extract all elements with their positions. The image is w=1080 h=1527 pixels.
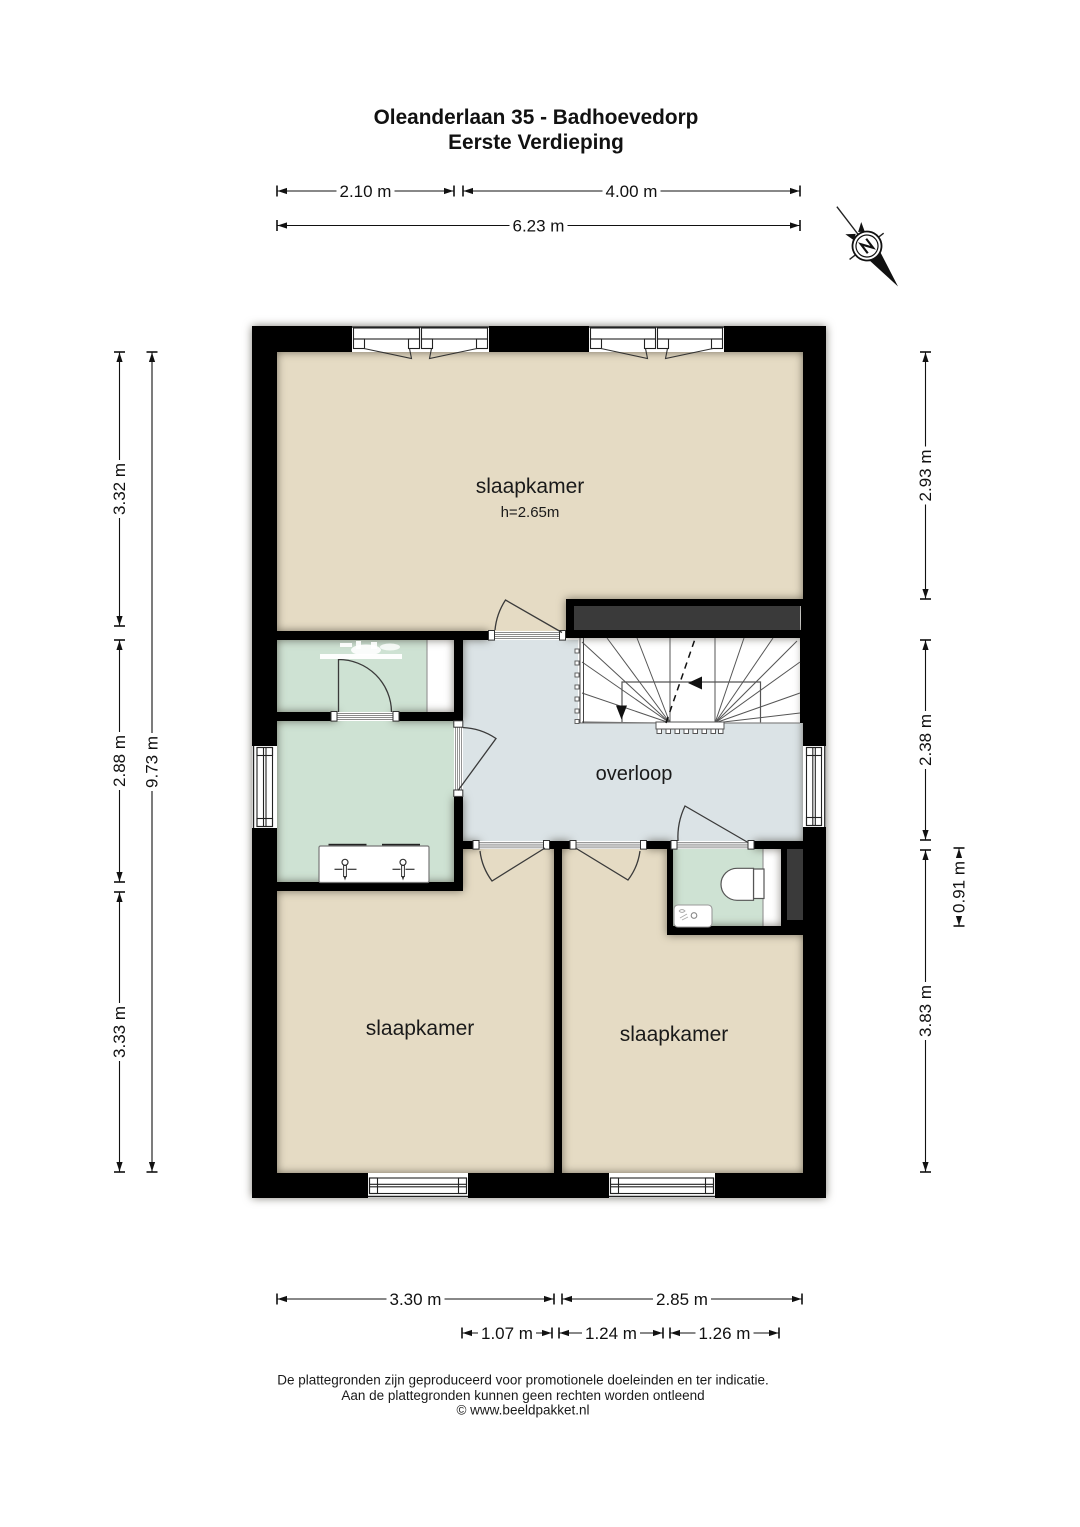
svg-text:1.26 m: 1.26 m xyxy=(699,1324,751,1343)
svg-text:De plattegronden zijn geproduc: De plattegronden zijn geproduceerd voor … xyxy=(277,1373,769,1388)
svg-text:9.73 m: 9.73 m xyxy=(143,736,162,788)
svg-text:1.24 m: 1.24 m xyxy=(585,1324,637,1343)
svg-text:1.07 m: 1.07 m xyxy=(481,1324,533,1343)
svg-text:3.83 m: 3.83 m xyxy=(916,985,935,1037)
svg-text:3.32 m: 3.32 m xyxy=(110,463,129,515)
svg-text:Eerste Verdieping: Eerste Verdieping xyxy=(448,131,624,154)
svg-text:0.91 m: 0.91 m xyxy=(950,861,969,913)
svg-text:2.93 m: 2.93 m xyxy=(916,450,935,502)
svg-text:slaapkamer: slaapkamer xyxy=(476,475,585,498)
svg-text:2.10 m: 2.10 m xyxy=(340,182,392,201)
svg-text:slaapkamer: slaapkamer xyxy=(620,1023,729,1046)
svg-text:Oleanderlaan 35 - Badhoevedorp: Oleanderlaan 35 - Badhoevedorp xyxy=(374,106,699,129)
svg-text:4.00 m: 4.00 m xyxy=(606,182,658,201)
svg-text:3.30 m: 3.30 m xyxy=(390,1290,442,1309)
svg-text:© www.beeldpakket.nl: © www.beeldpakket.nl xyxy=(456,1403,589,1418)
svg-text:overloop: overloop xyxy=(596,763,673,785)
svg-text:2.38 m: 2.38 m xyxy=(916,714,935,766)
svg-text:Aan de plattegronden kunnen ge: Aan de plattegronden kunnen geen rechten… xyxy=(341,1388,704,1403)
svg-text:h=2.65m: h=2.65m xyxy=(501,504,560,521)
svg-text:slaapkamer: slaapkamer xyxy=(366,1017,475,1040)
svg-text:2.85 m: 2.85 m xyxy=(656,1290,708,1309)
svg-text:3.33 m: 3.33 m xyxy=(110,1006,129,1058)
svg-text:6.23 m: 6.23 m xyxy=(513,217,565,236)
svg-text:2.88 m: 2.88 m xyxy=(110,735,129,787)
